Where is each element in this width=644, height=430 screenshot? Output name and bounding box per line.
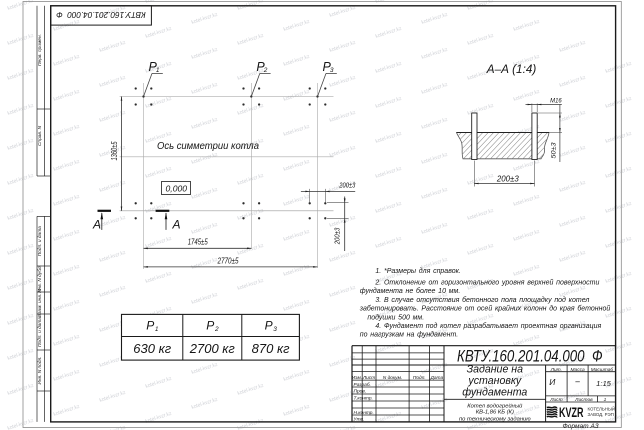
- svg-text:kotel-kvzr.kz: kotel-kvzr.kz: [513, 19, 541, 33]
- svg-text:Справ. N: Справ. N: [37, 125, 43, 146]
- svg-text:kotel-kvzr.kz: kotel-kvzr.kz: [283, 404, 311, 418]
- svg-text:kotel-kvzr.kz: kotel-kvzr.kz: [7, 348, 35, 362]
- svg-text:Листов: Листов: [574, 397, 593, 403]
- svg-text:kotel-kvzr.kz: kotel-kvzr.kz: [559, 250, 587, 264]
- svg-text:kotel-kvzr.kz: kotel-kvzr.kz: [191, 117, 219, 131]
- svg-text:kotel-kvzr.kz: kotel-kvzr.kz: [7, 243, 35, 257]
- svg-text:Формат А3: Формат А3: [562, 423, 598, 430]
- svg-text:kotel-kvzr.kz: kotel-kvzr.kz: [53, 89, 81, 103]
- svg-text:kotel-kvzr.kz: kotel-kvzr.kz: [421, 222, 449, 236]
- svg-text:Инв. N подл.: Инв. N подл.: [37, 356, 43, 384]
- svg-text:Лист: Лист: [549, 397, 562, 403]
- svg-text:kotel-kvzr.kz: kotel-kvzr.kz: [421, 152, 449, 166]
- svg-text:Пров.: Пров.: [354, 389, 367, 395]
- svg-text:–: –: [574, 377, 580, 386]
- svg-text:kotel-kvzr.kz: kotel-kvzr.kz: [145, 236, 173, 250]
- svg-text:kotel-kvzr.kz: kotel-kvzr.kz: [237, 33, 265, 47]
- svg-text:Н.контр.: Н.контр.: [354, 410, 374, 416]
- svg-text:kotel-kvzr.kz: kotel-kvzr.kz: [191, 362, 219, 376]
- svg-text:kotel-kvzr.kz: kotel-kvzr.kz: [7, 138, 35, 152]
- svg-text:kotel-kvzr.kz: kotel-kvzr.kz: [191, 187, 219, 201]
- svg-text:kotel-kvzr.kz: kotel-kvzr.kz: [467, 103, 495, 117]
- svg-text:kotel-kvzr.kz: kotel-kvzr.kz: [329, 215, 357, 229]
- svg-text:И: И: [549, 377, 556, 387]
- svg-text:kotel-kvzr.kz: kotel-kvzr.kz: [145, 376, 173, 390]
- svg-text:kotel-kvzr.kz: kotel-kvzr.kz: [53, 334, 81, 348]
- svg-text:630 кг: 630 кг: [133, 341, 171, 356]
- svg-text:kotel-kvzr.kz: kotel-kvzr.kz: [191, 152, 219, 166]
- svg-text:по техническому заданию: по техническому заданию: [459, 417, 531, 423]
- svg-text:Изм.: Изм.: [352, 375, 362, 381]
- svg-text:kotel-kvzr.kz: kotel-kvzr.kz: [191, 257, 219, 271]
- svg-text:kotel-kvzr.kz: kotel-kvzr.kz: [99, 180, 127, 194]
- svg-text:kotel-kvzr.kz: kotel-kvzr.kz: [329, 110, 357, 124]
- svg-text:КВ-1,86 КБ (К): КВ-1,86 КБ (К): [476, 410, 514, 416]
- svg-text:50±3: 50±3: [551, 142, 558, 159]
- svg-text:kotel-kvzr.kz: kotel-kvzr.kz: [375, 0, 403, 5]
- svg-text:kotel-kvzr.kz: kotel-kvzr.kz: [53, 124, 81, 138]
- svg-text:kotel-kvzr.kz: kotel-kvzr.kz: [283, 229, 311, 243]
- svg-text:kotel-kvzr.kz: kotel-kvzr.kz: [559, 110, 587, 124]
- svg-text:P: P: [206, 319, 214, 333]
- svg-text:kotel-kvzr.kz: kotel-kvzr.kz: [53, 229, 81, 243]
- svg-text:kotel-kvzr.kz: kotel-kvzr.kz: [283, 54, 311, 68]
- svg-text:КОТЕЛЬНЫЙ: КОТЕЛЬНЫЙ: [588, 406, 616, 411]
- svg-text:kotel-kvzr.kz: kotel-kvzr.kz: [191, 82, 219, 96]
- svg-text:kotel-kvzr.kz: kotel-kvzr.kz: [191, 292, 219, 306]
- svg-text:kotel-kvzr.kz: kotel-kvzr.kz: [605, 236, 633, 250]
- svg-text:kotel-kvzr.kz: kotel-kvzr.kz: [237, 278, 265, 292]
- svg-text:kotel-kvzr.kz: kotel-kvzr.kz: [375, 201, 403, 215]
- svg-text:М16: М16: [550, 98, 562, 105]
- svg-text:kotel-kvzr.kz: kotel-kvzr.kz: [191, 222, 219, 236]
- svg-text:kotel-kvzr.kz: kotel-kvzr.kz: [329, 250, 357, 264]
- svg-text:kotel-kvzr.kz: kotel-kvzr.kz: [99, 75, 127, 89]
- svg-text:kotel-kvzr.kz: kotel-kvzr.kz: [99, 390, 127, 404]
- svg-text:kotel-kvzr.kz: kotel-kvzr.kz: [329, 285, 357, 299]
- svg-text:Разраб.: Разраб.: [354, 382, 371, 388]
- svg-text:1: 1: [156, 67, 160, 74]
- svg-text:1745±5: 1745±5: [188, 237, 208, 247]
- svg-text:kotel-kvzr.kz: kotel-kvzr.kz: [237, 103, 265, 117]
- svg-text:забетонировать. Расстояние от: забетонировать. Расстояние от осей крайн…: [359, 305, 611, 313]
- svg-text:1: 1: [604, 397, 607, 403]
- svg-text:Инв. N дубл.: Инв. N дубл.: [37, 265, 43, 293]
- svg-text:kotel-kvzr.kz: kotel-kvzr.kz: [7, 33, 35, 47]
- svg-text:kotel-kvzr.kz: kotel-kvzr.kz: [421, 47, 449, 61]
- svg-text:kotel-kvzr.kz: kotel-kvzr.kz: [605, 131, 633, 145]
- svg-text:А–А (1:4): А–А (1:4): [486, 62, 536, 76]
- svg-text:kotel-kvzr.kz: kotel-kvzr.kz: [375, 26, 403, 40]
- svg-text:2770±5: 2770±5: [217, 256, 239, 266]
- svg-text:kotel-kvzr.kz: kotel-kvzr.kz: [605, 166, 633, 180]
- svg-text:kotel-kvzr.kz: kotel-kvzr.kz: [145, 271, 173, 285]
- svg-text:kotel-kvzr.kz: kotel-kvzr.kz: [99, 250, 127, 264]
- svg-text:kotel-kvzr.kz: kotel-kvzr.kz: [53, 19, 81, 33]
- svg-text:kotel-kvzr.kz: kotel-kvzr.kz: [283, 369, 311, 383]
- svg-text:kotel-kvzr.kz: kotel-kvzr.kz: [559, 40, 587, 54]
- svg-text:kotel-kvzr.kz: kotel-kvzr.kz: [513, 264, 541, 278]
- svg-text:Задание на: Задание на: [467, 364, 524, 376]
- svg-text:kotel-kvzr.kz: kotel-kvzr.kz: [99, 285, 127, 299]
- svg-text:kotel-kvzr.kz: kotel-kvzr.kz: [53, 194, 81, 208]
- svg-text:Лит.: Лит.: [550, 367, 562, 373]
- svg-text:установку: установку: [467, 375, 521, 387]
- svg-text:0,000: 0,000: [166, 184, 188, 194]
- svg-text:kotel-kvzr.kz: kotel-kvzr.kz: [467, 243, 495, 257]
- svg-text:kotel-kvzr.kz: kotel-kvzr.kz: [99, 110, 127, 124]
- svg-text:kotel-kvzr.kz: kotel-kvzr.kz: [237, 418, 265, 430]
- svg-text:kotel-kvzr.kz: kotel-kvzr.kz: [191, 12, 219, 26]
- svg-text:Подп. и дата: Подп. и дата: [37, 317, 43, 347]
- svg-text:kotel-kvzr.kz: kotel-kvzr.kz: [605, 96, 633, 110]
- svg-text:kotel-kvzr.kz: kotel-kvzr.kz: [467, 33, 495, 47]
- svg-text:2: 2: [214, 326, 219, 333]
- svg-text:2. Отклонение от горизонтально: 2. Отклонение от горизонтального уровня …: [374, 278, 599, 286]
- svg-text:Перв. примен.: Перв. примен.: [37, 34, 43, 66]
- svg-text:kotel-kvzr.kz: kotel-kvzr.kz: [421, 82, 449, 96]
- svg-text:Подп.: Подп.: [413, 375, 426, 381]
- svg-text:фундамента: фундамента: [462, 386, 527, 398]
- svg-text:kotel-kvzr.kz: kotel-kvzr.kz: [513, 159, 541, 173]
- svg-text:kotel-kvzr.kz: kotel-kvzr.kz: [559, 75, 587, 89]
- svg-text:KVZR: KVZR: [559, 405, 584, 420]
- svg-text:kotel-kvzr.kz: kotel-kvzr.kz: [375, 131, 403, 145]
- svg-text:kotel-kvzr.kz: kotel-kvzr.kz: [283, 194, 311, 208]
- svg-text:200±3: 200±3: [339, 181, 356, 190]
- svg-text:kotel-kvzr.kz: kotel-kvzr.kz: [559, 180, 587, 194]
- svg-text:kotel-kvzr.kz: kotel-kvzr.kz: [283, 299, 311, 313]
- svg-text:kotel-kvzr.kz: kotel-kvzr.kz: [421, 187, 449, 201]
- svg-text:kotel-kvzr.kz: kotel-kvzr.kz: [7, 208, 35, 222]
- svg-text:kotel-kvzr.kz: kotel-kvzr.kz: [53, 54, 81, 68]
- svg-text:Дата: Дата: [429, 375, 443, 381]
- svg-text:1: 1: [155, 326, 159, 333]
- svg-text:kotel-kvzr.kz: kotel-kvzr.kz: [53, 369, 81, 383]
- svg-text:kotel-kvzr.kz: kotel-kvzr.kz: [559, 145, 587, 159]
- svg-text:1:15: 1:15: [596, 379, 612, 388]
- svg-text:200±3: 200±3: [496, 174, 519, 183]
- svg-text:200±3: 200±3: [333, 227, 342, 245]
- svg-text:N докум.: N докум.: [383, 375, 402, 381]
- svg-text:kotel-kvzr.kz: kotel-kvzr.kz: [99, 40, 127, 54]
- svg-text:kotel-kvzr.kz: kotel-kvzr.kz: [237, 243, 265, 257]
- svg-text:kotel-kvzr.kz: kotel-kvzr.kz: [145, 201, 173, 215]
- svg-text:kotel-kvzr.kz: kotel-kvzr.kz: [375, 236, 403, 250]
- svg-text:kotel-kvzr.kz: kotel-kvzr.kz: [375, 411, 403, 425]
- svg-text:kotel-kvzr.kz: kotel-kvzr.kz: [467, 173, 495, 187]
- svg-text:A: A: [92, 218, 101, 232]
- svg-text:kotel-kvzr.kz: kotel-kvzr.kz: [283, 124, 311, 138]
- svg-text:kotel-kvzr.kz: kotel-kvzr.kz: [375, 61, 403, 75]
- svg-text:kotel-kvzr.kz: kotel-kvzr.kz: [7, 383, 35, 397]
- svg-text:kotel-kvzr.kz: kotel-kvzr.kz: [191, 397, 219, 411]
- svg-text:kotel-kvzr.kz: kotel-kvzr.kz: [329, 40, 357, 54]
- svg-text:КВТУ.160.201.04.000 Ф: КВТУ.160.201.04.000 Ф: [56, 10, 146, 19]
- svg-text:kotel-kvzr.kz: kotel-kvzr.kz: [7, 68, 35, 82]
- svg-text:kotel-kvzr.kz: kotel-kvzr.kz: [191, 47, 219, 61]
- svg-text:Масса: Масса: [571, 367, 586, 373]
- svg-text:3: 3: [273, 326, 277, 333]
- svg-text:Взам. инв. N: Взам. инв. N: [37, 289, 43, 317]
- svg-text:kotel-kvzr.kz: kotel-kvzr.kz: [53, 264, 81, 278]
- svg-text:kotel-kvzr.kz: kotel-kvzr.kz: [7, 278, 35, 292]
- svg-text:kotel-kvzr.kz: kotel-kvzr.kz: [237, 173, 265, 187]
- svg-text:kotel-kvzr.kz: kotel-kvzr.kz: [421, 117, 449, 131]
- svg-text:kotel-kvzr.kz: kotel-kvzr.kz: [237, 208, 265, 222]
- svg-text:kotel-kvzr.kz: kotel-kvzr.kz: [7, 418, 35, 430]
- svg-text:kotel-kvzr.kz: kotel-kvzr.kz: [145, 26, 173, 40]
- svg-text:по нагрузкам на фундамент.: по нагрузкам на фундамент.: [360, 331, 458, 339]
- svg-text:kotel-kvzr.kz: kotel-kvzr.kz: [145, 96, 173, 110]
- svg-text:1360±5: 1360±5: [109, 141, 119, 160]
- svg-text:2: 2: [263, 67, 268, 74]
- svg-text:P: P: [146, 319, 154, 333]
- svg-text:kotel-kvzr.kz: kotel-kvzr.kz: [283, 89, 311, 103]
- svg-text:kotel-kvzr.kz: kotel-kvzr.kz: [605, 201, 633, 215]
- svg-text:kotel-kvzr.kz: kotel-kvzr.kz: [329, 320, 357, 334]
- svg-text:kotel-kvzr.kz: kotel-kvzr.kz: [53, 404, 81, 418]
- svg-text:ЗАВОД, РЭП: ЗАВОД, РЭП: [588, 412, 614, 417]
- svg-text:A: A: [171, 218, 180, 232]
- svg-text:kotel-kvzr.kz: kotel-kvzr.kz: [329, 5, 357, 19]
- svg-text:Утв.: Утв.: [354, 417, 365, 423]
- svg-text:Подп. и дата: Подп. и дата: [37, 226, 43, 256]
- svg-text:kotel-kvzr.kz: kotel-kvzr.kz: [375, 166, 403, 180]
- svg-text:kotel-kvzr.kz: kotel-kvzr.kz: [467, 208, 495, 222]
- svg-text:3. В случае отсутствия бетонно: 3. В случае отсутствия бетонного пола пл…: [375, 296, 589, 304]
- svg-text:kotel-kvzr.kz: kotel-kvzr.kz: [99, 215, 127, 229]
- svg-text:Масштаб: Масштаб: [591, 367, 614, 373]
- svg-text:870 кг: 870 кг: [252, 341, 290, 356]
- svg-text:kotel-kvzr.kz: kotel-kvzr.kz: [145, 411, 173, 425]
- svg-text:Т.контр.: Т.контр.: [354, 396, 373, 402]
- svg-text:kotel-kvzr.kz: kotel-kvzr.kz: [53, 159, 81, 173]
- svg-text:kotel-kvzr.kz: kotel-kvzr.kz: [283, 264, 311, 278]
- svg-text:kotel-kvzr.kz: kotel-kvzr.kz: [237, 383, 265, 397]
- svg-text:kotel-kvzr.kz: kotel-kvzr.kz: [53, 299, 81, 313]
- svg-text:kotel-kvzr.kz: kotel-kvzr.kz: [605, 61, 633, 75]
- svg-text:kotel-kvzr.kz: kotel-kvzr.kz: [513, 229, 541, 243]
- svg-text:фундамента не более 10 мм.: фундамента не более 10 мм.: [360, 287, 461, 295]
- svg-text:kotel-kvzr.kz: kotel-kvzr.kz: [145, 0, 173, 5]
- svg-text:kotel-kvzr.kz: kotel-kvzr.kz: [283, 159, 311, 173]
- svg-text:kotel-kvzr.kz: kotel-kvzr.kz: [329, 75, 357, 89]
- svg-text:kotel-kvzr.kz: kotel-kvzr.kz: [283, 19, 311, 33]
- svg-text:kotel-kvzr.kz: kotel-kvzr.kz: [7, 103, 35, 117]
- svg-text:P: P: [265, 319, 273, 333]
- svg-text:Ось симметрии котла: Ось симметрии котла: [157, 141, 259, 152]
- svg-text:Котел водогрейный: Котел водогрейный: [467, 402, 523, 409]
- svg-text:kotel-kvzr.kz: kotel-kvzr.kz: [7, 313, 35, 327]
- svg-text:подушки 500 мм.: подушки 500 мм.: [367, 314, 424, 322]
- svg-text:4. Фундамент под котел разраба: 4. Фундамент под котел разрабатывает про…: [375, 322, 601, 330]
- svg-text:2700 кг: 2700 кг: [189, 341, 236, 356]
- svg-text:kotel-kvzr.kz: kotel-kvzr.kz: [421, 12, 449, 26]
- svg-text:kotel-kvzr.kz: kotel-kvzr.kz: [7, 173, 35, 187]
- svg-text:kotel-kvzr.kz: kotel-kvzr.kz: [513, 89, 541, 103]
- svg-text:kotel-kvzr.kz: kotel-kvzr.kz: [375, 96, 403, 110]
- svg-text:kotel-kvzr.kz: kotel-kvzr.kz: [605, 341, 633, 355]
- svg-text:kotel-kvzr.kz: kotel-kvzr.kz: [145, 166, 173, 180]
- svg-text:1. *Размеры для справок.: 1. *Размеры для справок.: [375, 267, 461, 275]
- svg-text:Лист: Лист: [362, 375, 375, 381]
- svg-text:kotel-kvzr.kz: kotel-kvzr.kz: [605, 271, 633, 285]
- svg-text:kotel-kvzr.kz: kotel-kvzr.kz: [513, 194, 541, 208]
- svg-text:3: 3: [330, 67, 334, 74]
- svg-text:kotel-kvzr.kz: kotel-kvzr.kz: [559, 215, 587, 229]
